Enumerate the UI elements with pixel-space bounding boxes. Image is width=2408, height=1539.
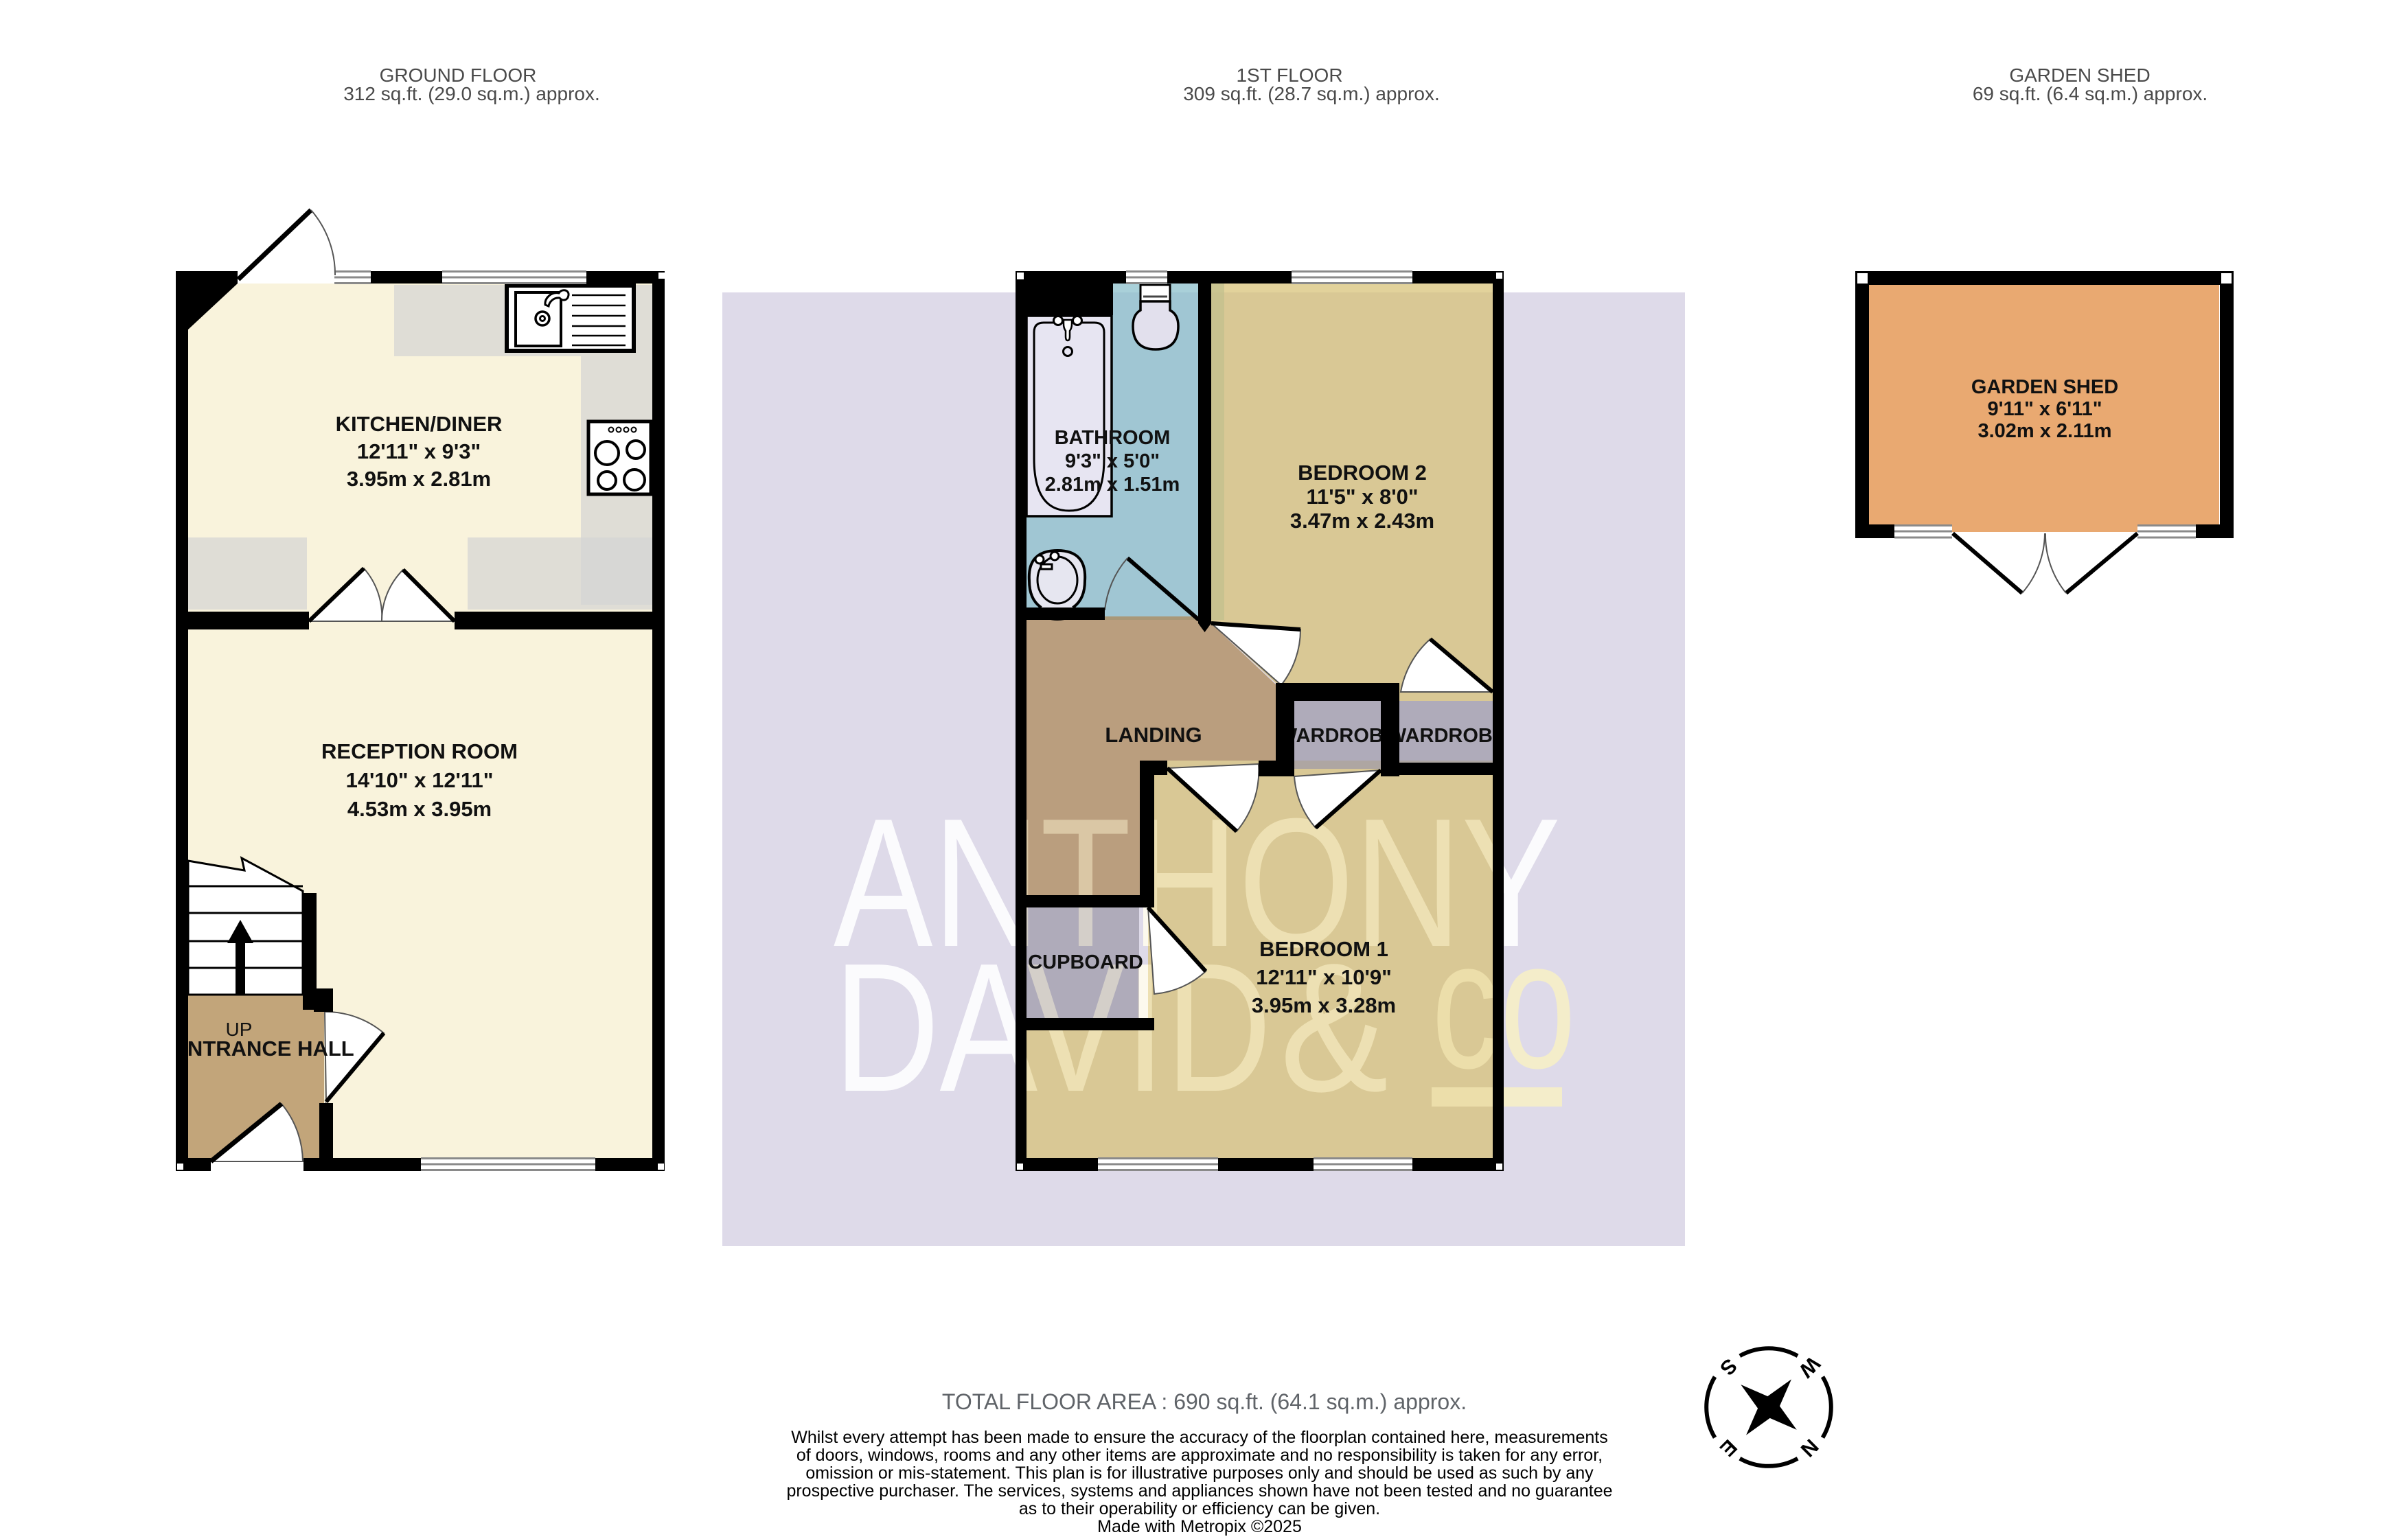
svg-text:Made with Metropix ©2025: Made with Metropix ©2025 <box>1097 1517 1302 1536</box>
svg-text:3.47m x 2.43m: 3.47m x 2.43m <box>1290 509 1434 533</box>
svg-text:12'11" x 10'9": 12'11" x 10'9" <box>1256 965 1392 989</box>
svg-text:ENTRANCE HALL: ENTRANCE HALL <box>173 1037 354 1061</box>
svg-text:LANDING: LANDING <box>1105 723 1202 747</box>
svg-text:WARDROBE: WARDROBE <box>1388 725 1506 747</box>
svg-text:of doors, windows, rooms and a: of doors, windows, rooms and any other i… <box>796 1446 1603 1465</box>
svg-text:omission or mis-statement. Thi: omission or mis-statement. This plan is … <box>805 1463 1594 1483</box>
svg-text:14'10" x 12'11": 14'10" x 12'11" <box>346 768 494 792</box>
svg-text:KITCHEN/DINER: KITCHEN/DINER <box>336 412 503 436</box>
svg-text:TOTAL FLOOR AREA : 690 sq.ft.: TOTAL FLOOR AREA : 690 sq.ft. (64.1 sq.m… <box>942 1389 1467 1414</box>
svg-text:UP: UP <box>226 1019 253 1040</box>
svg-text:11'5" x 8'0": 11'5" x 8'0" <box>1306 485 1418 509</box>
svg-text:69 sq.ft. (6.4 sq.m.) approx.: 69 sq.ft. (6.4 sq.m.) approx. <box>1973 83 2208 104</box>
svg-text:12'11" x 9'3": 12'11" x 9'3" <box>357 439 481 463</box>
svg-text:3.95m x 2.81m: 3.95m x 2.81m <box>347 467 491 491</box>
svg-text:CUPBOARD: CUPBOARD <box>1028 951 1143 973</box>
svg-text:3.02m x 2.11m: 3.02m x 2.11m <box>1977 420 2111 442</box>
svg-text:4.53m x 3.95m: 4.53m x 3.95m <box>347 797 492 821</box>
svg-text:WARDROBE: WARDROBE <box>1278 725 1397 747</box>
svg-text:3.95m x 3.28m: 3.95m x 3.28m <box>1252 993 1396 1017</box>
svg-text:Whilst every attempt has been: Whilst every attempt has been made to en… <box>791 1428 1608 1447</box>
svg-text:GARDEN SHED: GARDEN SHED <box>1971 376 2118 398</box>
svg-text:BEDROOM 1: BEDROOM 1 <box>1259 937 1388 961</box>
svg-text:312 sq.ft. (29.0 sq.m.) approx: 312 sq.ft. (29.0 sq.m.) approx. <box>343 83 600 104</box>
svg-text:BATHROOM: BATHROOM <box>1055 427 1171 449</box>
svg-text:9'11" x 6'11": 9'11" x 6'11" <box>1987 398 2102 420</box>
svg-text:RECEPTION ROOM: RECEPTION ROOM <box>321 739 518 763</box>
svg-text:9'3" x 5'0": 9'3" x 5'0" <box>1065 450 1160 472</box>
svg-text:BEDROOM 2: BEDROOM 2 <box>1298 461 1427 485</box>
svg-text:prospective purchaser. The ser: prospective purchaser. The services, sys… <box>786 1481 1612 1501</box>
svg-text:as to their operability or eff: as to their operability or efficiency ca… <box>1019 1499 1380 1518</box>
svg-text:309 sq.ft. (28.7 sq.m.) approx: 309 sq.ft. (28.7 sq.m.) approx. <box>1183 83 1440 104</box>
svg-text:2.81m x 1.51m: 2.81m x 1.51m <box>1045 474 1180 496</box>
